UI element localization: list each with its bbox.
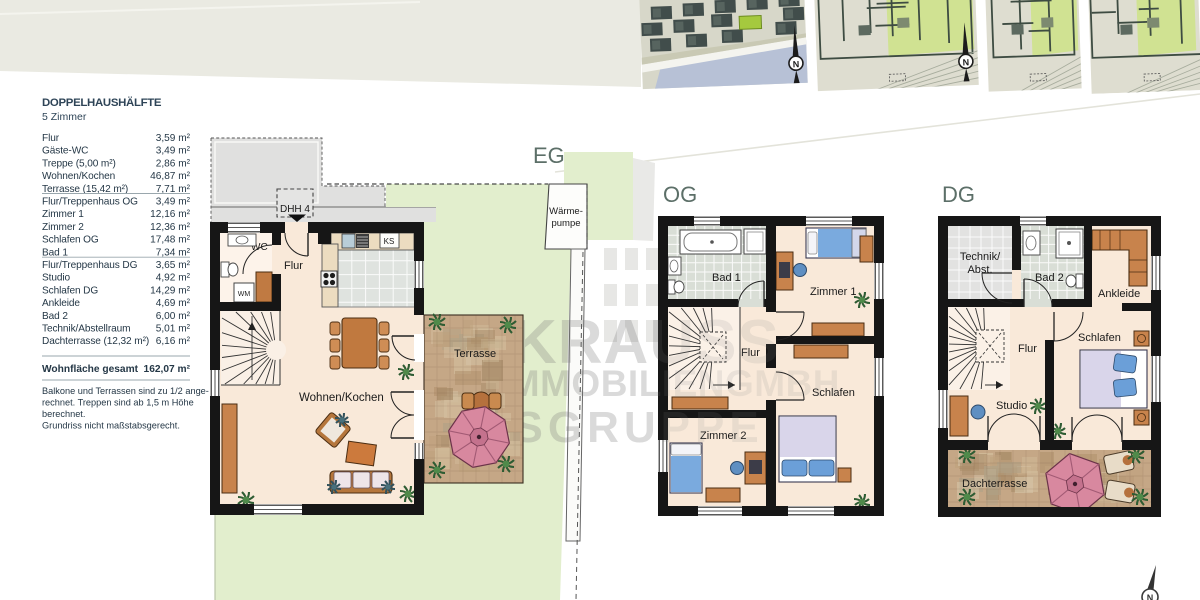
svg-text:Flur: Flur xyxy=(284,260,303,272)
svg-text:Schlafen DG: Schlafen DG xyxy=(42,285,98,296)
svg-text:N: N xyxy=(1147,593,1154,600)
svg-text:Bad 1: Bad 1 xyxy=(42,247,68,258)
svg-text:Zimmer 2: Zimmer 2 xyxy=(42,222,84,233)
svg-text:Schlafen: Schlafen xyxy=(1078,332,1121,344)
svg-text:N: N xyxy=(793,59,800,69)
svg-text:Bad 1: Bad 1 xyxy=(712,272,741,284)
svg-text:Technik/Abstellraum: Technik/Abstellraum xyxy=(42,324,130,335)
svg-text:6,00 m²: 6,00 m² xyxy=(156,311,191,322)
svg-text:rechnet. Treppen sind ab 1,5 m: rechnet. Treppen sind ab 1,5 m Höhe xyxy=(42,398,194,408)
svg-text:DOPPELHAUSHÄLFTE: DOPPELHAUSHÄLFTE xyxy=(42,96,162,109)
svg-text:Terrasse: Terrasse xyxy=(454,348,496,360)
svg-text:12,36 m²: 12,36 m² xyxy=(150,222,190,233)
svg-text:3,49 m²: 3,49 m² xyxy=(156,197,191,208)
svg-text:12,16 m²: 12,16 m² xyxy=(150,209,190,220)
svg-text:3,49 m²: 3,49 m² xyxy=(156,146,191,157)
svg-text:Flur: Flur xyxy=(42,133,60,144)
svg-text:Wohnen/Kochen: Wohnen/Kochen xyxy=(42,171,115,182)
svg-text:4,92 m²: 4,92 m² xyxy=(156,273,191,284)
svg-text:Dachterrasse: Dachterrasse xyxy=(962,478,1027,490)
svg-text:Wohnfläche gesamt: Wohnfläche gesamt xyxy=(42,364,139,375)
svg-text:3,59 m²: 3,59 m² xyxy=(156,133,191,144)
svg-text:46,87 m²: 46,87 m² xyxy=(150,171,190,182)
svg-text:162,07 m²: 162,07 m² xyxy=(144,364,191,375)
svg-text:17,48 m²: 17,48 m² xyxy=(150,235,190,246)
svg-text:Wohnen/Kochen: Wohnen/Kochen xyxy=(299,392,384,404)
svg-text:Schlafen OG: Schlafen OG xyxy=(42,235,99,246)
svg-text:Gäste-WC: Gäste-WC xyxy=(42,146,88,157)
svg-text:Studio: Studio xyxy=(42,273,71,284)
svg-text:Bad 2: Bad 2 xyxy=(1035,272,1064,284)
svg-text:6,16 m²: 6,16 m² xyxy=(156,336,191,347)
svg-text:2,86 m²: 2,86 m² xyxy=(156,158,191,169)
svg-text:KS: KS xyxy=(384,237,395,246)
svg-text:14,29 m²: 14,29 m² xyxy=(150,285,190,296)
svg-text:Ankleide: Ankleide xyxy=(1098,288,1140,300)
svg-text:Technik/: Technik/ xyxy=(960,251,1001,263)
svg-text:Grundriss nicht maßstabsgerech: Grundriss nicht maßstabsgerecht. xyxy=(42,421,180,431)
svg-text:OG: OG xyxy=(663,182,697,207)
svg-text:Flur/Treppenhaus OG: Flur/Treppenhaus OG xyxy=(42,197,138,208)
svg-text:Dachterrasse (12,32 m²): Dachterrasse (12,32 m²) xyxy=(42,336,149,347)
svg-text:5,01 m²: 5,01 m² xyxy=(156,324,191,335)
svg-text:Flur/Treppenhaus DG: Flur/Treppenhaus DG xyxy=(42,260,138,271)
svg-text:Wärme-: Wärme- xyxy=(549,206,583,217)
svg-text:Studio: Studio xyxy=(996,400,1027,412)
svg-text:DG: DG xyxy=(942,182,975,207)
svg-text:EG: EG xyxy=(533,143,565,168)
svg-text:DHH 4: DHH 4 xyxy=(280,204,310,215)
svg-text:WM: WM xyxy=(238,291,251,298)
svg-text:Bad 2: Bad 2 xyxy=(42,311,68,322)
svg-text:Ankleide: Ankleide xyxy=(42,298,80,309)
svg-text:Abst.: Abst. xyxy=(967,264,992,276)
svg-text:7,34 m²: 7,34 m² xyxy=(156,247,191,258)
svg-text:berechnet.: berechnet. xyxy=(42,409,85,419)
svg-text:Zimmer 1: Zimmer 1 xyxy=(42,209,84,220)
svg-text:pumpe: pumpe xyxy=(551,218,580,229)
svg-text:N: N xyxy=(962,57,969,67)
svg-text:Treppe (5,00 m²): Treppe (5,00 m²) xyxy=(42,158,116,169)
svg-text:Zimmer 1: Zimmer 1 xyxy=(810,286,856,298)
svg-text:Flur: Flur xyxy=(1018,343,1037,355)
svg-text:5 Zimmer: 5 Zimmer xyxy=(42,111,87,123)
svg-text:3,65 m²: 3,65 m² xyxy=(156,260,191,271)
svg-text:Balkone und Terrassen sind zu: Balkone und Terrassen sind zu 1/2 ange- xyxy=(42,386,209,396)
svg-text:4,69 m²: 4,69 m² xyxy=(156,298,191,309)
